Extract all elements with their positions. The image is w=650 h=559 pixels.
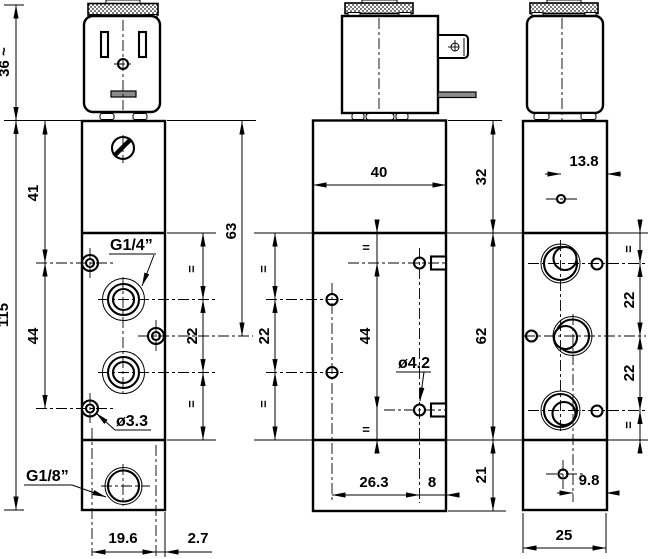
dim-label-19-6: 19.6 <box>108 530 137 547</box>
connector-slot-left <box>101 32 108 57</box>
rear-small-hole-3 <box>592 406 603 417</box>
dim-label-22-front: 22 <box>184 328 201 345</box>
dim-label-26-3: 26.3 <box>359 474 388 491</box>
dim-label-44-front: 44 <box>25 327 42 344</box>
dim-label-eq-lower-front: = <box>184 400 199 408</box>
dim-label-eq-left-lower: = <box>256 400 271 408</box>
dim-label-2-7: 2.7 <box>188 530 209 547</box>
dim-label-40: 40 <box>371 164 388 181</box>
dim-label-36: 36 ~ <box>0 47 13 77</box>
valve-dimension-drawing: 36 ~ 115 41 44 = 22 = 63 <box>0 0 650 559</box>
dim-label-eq-lower-rear: = <box>621 421 636 429</box>
dim-label-eq-upper-front: = <box>184 265 199 273</box>
dim-label-32: 32 <box>473 169 490 186</box>
port-label-g18: G1/8” <box>26 468 69 485</box>
dim-label-8: 8 <box>428 474 436 491</box>
technical-drawing-page: 36 ~ 115 41 44 = 22 = 63 <box>0 0 650 559</box>
dim-label-62: 62 <box>473 328 490 345</box>
dim-label-22-lower-rear: 22 <box>621 365 638 382</box>
dim-label-eq-mid-upper: = <box>362 240 370 255</box>
knurled-nut <box>88 4 158 16</box>
dim-label-eq-mid-lower: = <box>362 422 370 437</box>
dim-label-13-8: 13.8 <box>569 153 598 170</box>
port-label-g14: G1/4” <box>110 237 153 254</box>
dim-label-41: 41 <box>25 185 42 202</box>
connector-slot-right <box>139 32 146 57</box>
dim-label-eq-left-upper: = <box>256 265 271 273</box>
coil-body-rear <box>527 16 603 113</box>
dim-label-44-side: 44 <box>357 327 374 344</box>
solenoid-coil-front <box>84 0 160 120</box>
knurled-nut-rear <box>530 3 598 14</box>
dim-label-25: 25 <box>556 527 573 544</box>
hole-label-d33: ø3.3 <box>116 413 148 430</box>
dim-label-22-upper-rear: 22 <box>621 292 638 309</box>
knurled-nut-side <box>345 3 413 14</box>
coil-body-side <box>342 16 438 113</box>
dim-label-9-8: 9.8 <box>579 472 600 489</box>
dim-label-eq-upper-rear: = <box>621 245 636 253</box>
rear-small-hole-1 <box>592 259 603 270</box>
blade-terminal <box>438 92 476 98</box>
dim-label-63: 63 <box>223 223 240 240</box>
dim-label-21: 21 <box>473 467 490 484</box>
dim-label-115: 115 <box>0 303 12 327</box>
connector-bottom-slot <box>111 91 136 97</box>
hole-label-d42: ø4.2 <box>398 355 430 372</box>
dim-label-22-side: 22 <box>256 328 273 345</box>
